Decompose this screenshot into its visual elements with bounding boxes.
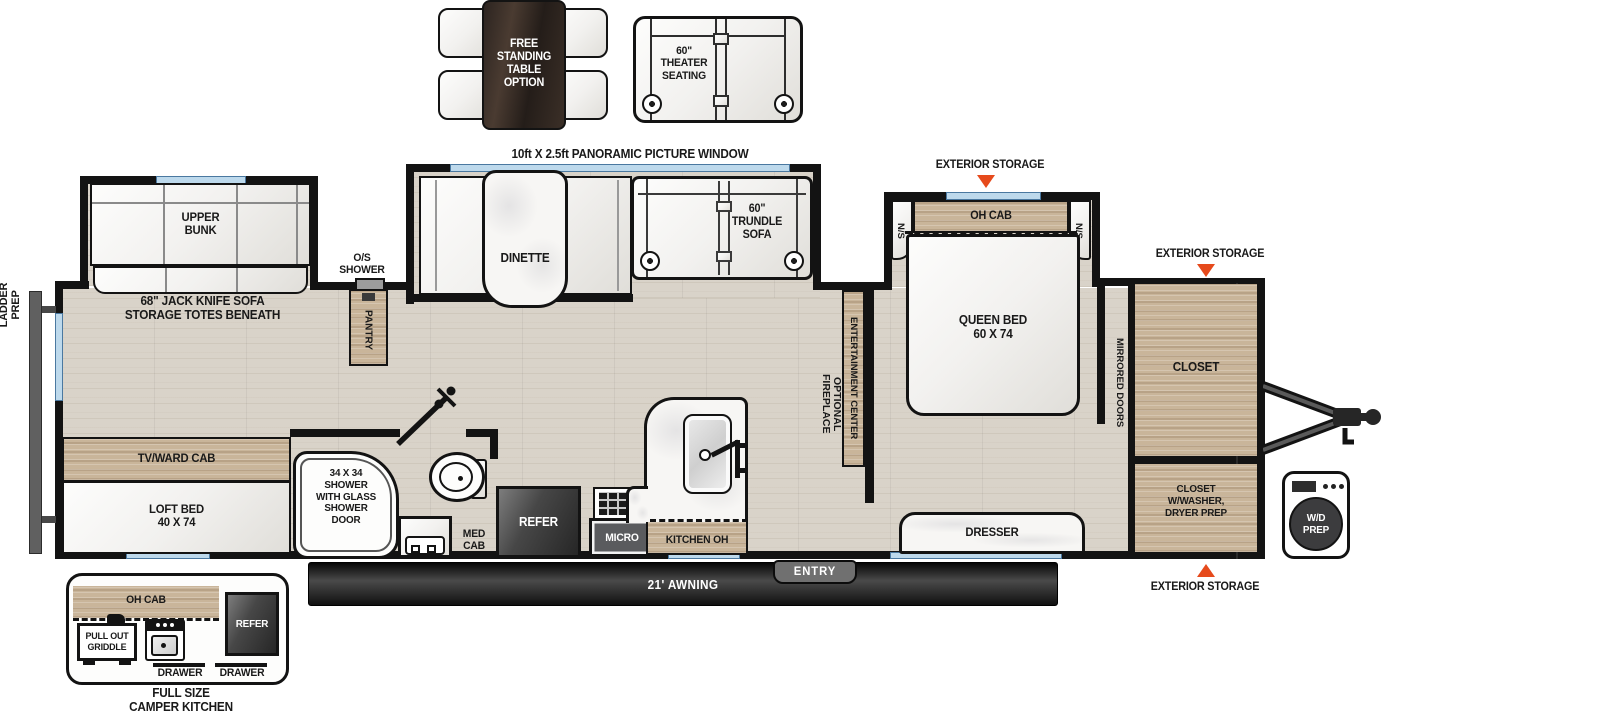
washer-drum-icon: W/D PREP [1289, 497, 1343, 551]
wall-bed-slide [1092, 192, 1100, 287]
wall-closet [1128, 283, 1135, 559]
dinette-table: DINETTE [482, 170, 568, 308]
kitchen-counter-ext [626, 486, 648, 523]
wall-bunk-slide [310, 176, 318, 289]
wall-entertainment [865, 290, 874, 503]
wall-bathroom [490, 429, 498, 459]
pull-out-griddle: PULL OUT GRIDDLE [77, 623, 137, 661]
refrigerator: REFER [496, 486, 581, 558]
ladder-prep-label: LADDER PREP [0, 268, 28, 342]
jack-knife-sofa-label: 68" JACK KNIFE SOFA STORAGE TOTES BENEAT… [101, 294, 303, 322]
washer-dryer-prep: W/D PREP [1282, 471, 1350, 559]
optional-fireplace-label: OPTIONAL FIREPLACE [806, 352, 842, 456]
dinette-label: DINETTE [487, 251, 562, 265]
cupholder-icon [784, 251, 804, 271]
camper-kitchen-oh-cab: OH CAB [73, 586, 219, 618]
closet-washer-dryer: CLOSET W/WASHER, DRYER PREP [1135, 464, 1257, 552]
queen-bed-label: QUEEN BED 60 X 74 [914, 313, 1072, 341]
upper-bunk: UPPER BUNK [90, 183, 311, 266]
ladder-bracket [42, 306, 56, 313]
loft-bed-label: LOFT BED 40 X 74 [71, 503, 283, 530]
dresser-label: DRESSER [907, 526, 1076, 539]
closet: CLOSET [1135, 284, 1257, 456]
bedroom-overhead-cabinet: OH CAB [913, 200, 1069, 233]
shower: 34 X 34 SHOWER WITH GLASS SHOWER DOOR [293, 451, 399, 559]
os-shower-label: O/S SHOWER [330, 252, 394, 277]
wall-dinette-slide [813, 164, 821, 290]
window [946, 192, 1041, 200]
pull-out-griddle-label: PULL OUT GRIDDLE [82, 632, 133, 653]
kitchen-overhead-cabinet: KITCHEN OH [646, 522, 748, 555]
pantry-label: PANTRY [362, 299, 373, 361]
dresser: DRESSER [899, 512, 1085, 554]
wall-dinette-slide [406, 164, 414, 304]
micro-label: MICRO [594, 532, 650, 544]
cupholder-icon [774, 94, 794, 114]
camper-kitchen-caption: FULL SIZE CAMPER KITCHEN [101, 686, 261, 713]
entertainment-center-label: ENTERTAINMENT CENTER [848, 296, 858, 461]
camper-oh-cab-label: OH CAB [77, 594, 214, 606]
window [55, 313, 63, 401]
exterior-storage-label: EXTERIOR STORAGE [1125, 581, 1285, 594]
camper-kitchen-sink [145, 619, 185, 661]
pantry: PANTRY [349, 289, 388, 366]
washer-panel-icon [1292, 481, 1316, 492]
drawer-label: DRAWER [211, 667, 273, 679]
camper-kitchen-box: OH CAB PULL OUT GRIDDLE REFER DRAWER DRA… [66, 573, 289, 685]
wall-bunk-slide [80, 176, 88, 289]
cupholder-icon [640, 251, 660, 271]
panoramic-window-label: 10ft X 2.5ft PANORAMIC PICTURE WINDOW [442, 147, 818, 161]
refer-label: REFER [501, 515, 575, 529]
rv-floorplan: FREE STANDING TABLE OPTION 60" THEATER S… [0, 0, 1600, 713]
queen-bed: QUEEN BED 60 X 74 [906, 234, 1080, 416]
storage-arrow-icon [977, 175, 995, 188]
wall-bathroom [290, 429, 400, 437]
closet-label: CLOSET [1139, 360, 1254, 374]
entertainment-center: ENTERTAINMENT CENTER [842, 290, 865, 467]
storage-arrow-icon [1197, 564, 1215, 577]
closet-washer-label: CLOSET W/WASHER, DRYER PREP [1139, 484, 1254, 519]
exterior-storage-label: EXTERIOR STORAGE [1130, 248, 1290, 261]
tv-ward-cabinet: TV/WARD CAB [62, 437, 291, 482]
med-cab-vanity [398, 516, 452, 558]
theater-seating-label: 60" THEATER SEATING [656, 45, 712, 82]
kitchen-oh-label: KITCHEN OH [651, 534, 743, 546]
trailer-hitch-icon [1263, 376, 1388, 458]
shower-label: 34 X 34 SHOWER WITH GLASS SHOWER DOOR [299, 468, 393, 527]
wall [813, 282, 892, 290]
bedroom-oh-cab-label: OH CAB [920, 210, 1063, 223]
awning-bar: 21' AWNING [308, 562, 1058, 606]
jack-knife-sofa [93, 266, 308, 294]
wall-closet-divider [1128, 456, 1265, 464]
drawer-front-icon [215, 663, 267, 667]
camper-kitchen-refer: REFER [225, 592, 279, 656]
camper-refer-label: REFER [229, 619, 274, 631]
entry-label: ENTRY [777, 565, 852, 578]
drawer-front-icon [153, 663, 205, 667]
faucet-knob-icon [699, 449, 711, 461]
nightstand-label: N/S [895, 208, 905, 254]
free-standing-table-label: FREE STANDING TABLE OPTION [486, 38, 561, 90]
ladder-icon [29, 291, 42, 554]
drawer-label: DRAWER [149, 667, 211, 679]
cupholder-icon [642, 94, 662, 114]
awning-label: 21' AWNING [331, 578, 1034, 592]
mirrored-doors-label: MIRRORED DOORS [1104, 320, 1124, 445]
toilet [429, 452, 485, 502]
trundle-sofa: 60" TRUNDLE SOFA [631, 176, 813, 280]
entry-door-marker: ENTRY [773, 560, 857, 584]
med-cab-label: MED CAB [453, 528, 494, 553]
tv-ward-cab-label: TV/WARD CAB [71, 452, 283, 465]
ladder-bracket [42, 516, 56, 523]
bathroom-door-icon [386, 376, 466, 450]
loft-bed: LOFT BED 40 X 74 [62, 481, 291, 554]
wd-prep-label: W/D PREP [1293, 513, 1340, 537]
upper-bunk-label: UPPER BUNK [99, 211, 303, 238]
storage-arrow-icon [1197, 264, 1215, 277]
theater-seating: 60" THEATER SEATING [633, 16, 803, 123]
free-standing-table: FREE STANDING TABLE OPTION [482, 0, 566, 130]
exterior-storage-label: EXTERIOR STORAGE [910, 159, 1070, 172]
trundle-sofa-label: 60" TRUNDLE SOFA [705, 203, 808, 242]
